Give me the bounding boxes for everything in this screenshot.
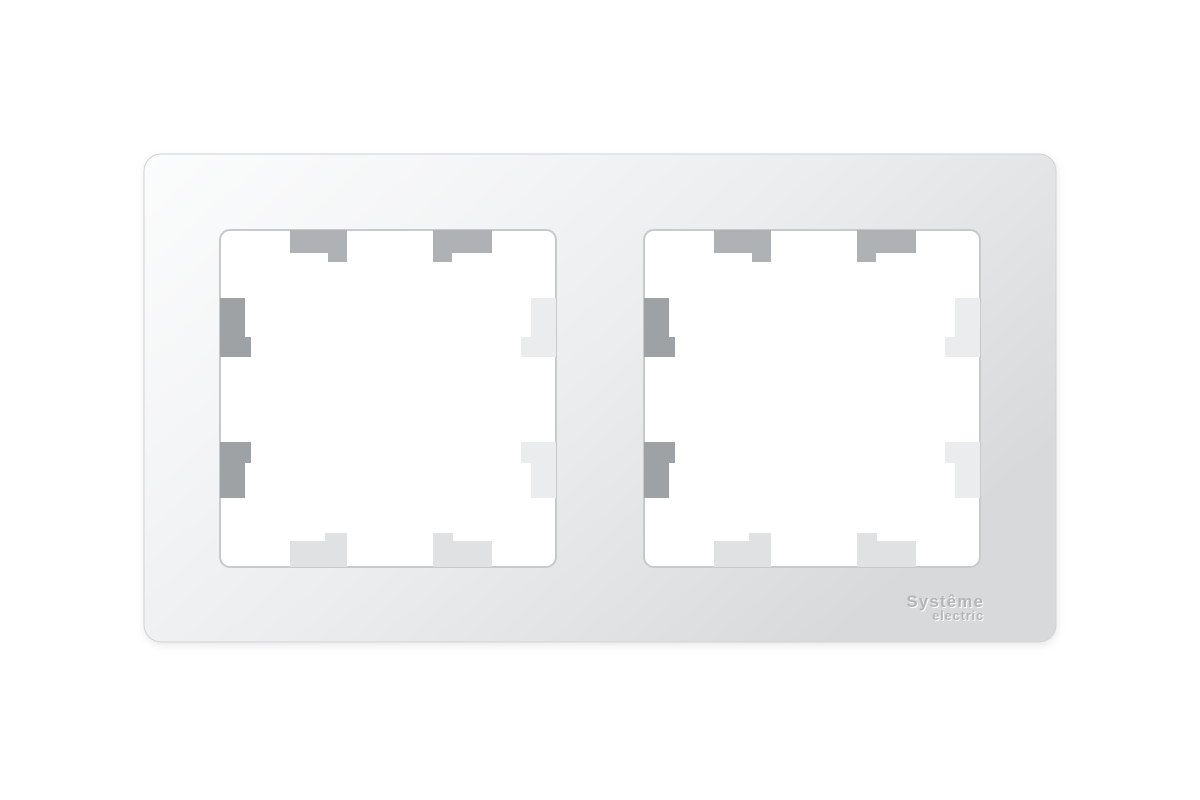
brand-logo-line2: electric — [932, 608, 984, 623]
product-photo-stage: Systême Systême electric electric — [0, 0, 1200, 800]
frame-opening-right — [644, 230, 980, 567]
frame-opening-left — [220, 230, 556, 567]
product-photo: Systême Systême electric electric — [0, 0, 1200, 800]
